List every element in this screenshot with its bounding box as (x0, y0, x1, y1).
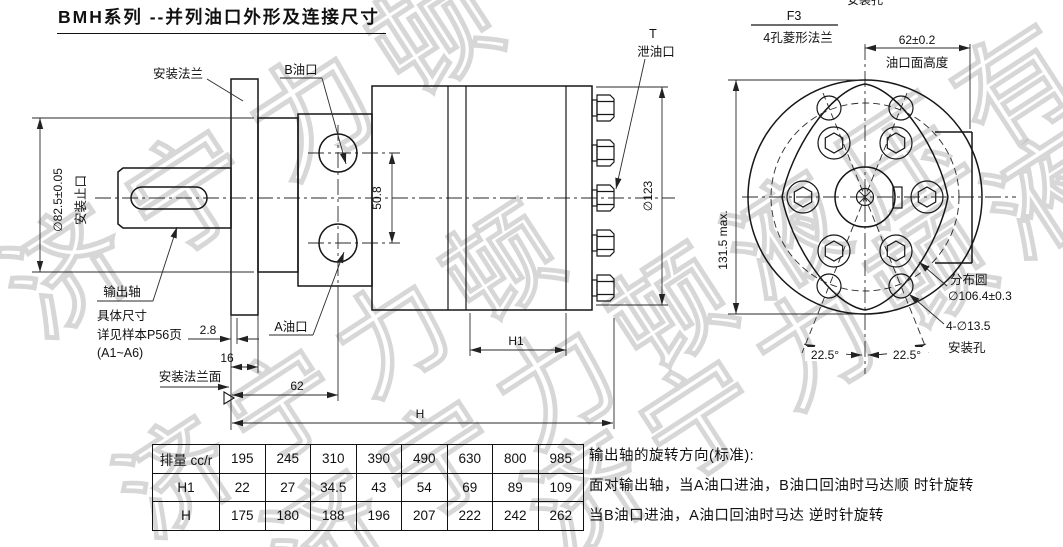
mount-face-label: 安装法兰面 (159, 369, 222, 384)
rotation-note-ccw: 当B油口进油，A油口回油时马达 逆时针旋转 (589, 501, 1063, 531)
flange-code-label: F3 (787, 9, 802, 23)
rotation-notes: 输出轴的旋转方向(标准): 面对输出轴，当A油口进油，B油口回油时马达顺 时针旋… (589, 441, 1063, 531)
table-row: 排量 cc/r 195 245 310 390 490 630 800 985 (153, 445, 584, 474)
table-row: H 175 180 188 196 207 222 242 262 (153, 502, 584, 531)
shaft-note-2: 详见样本P56页 (97, 327, 182, 342)
table-cell: 222 (447, 502, 493, 531)
angle-left-label: 22.5° (811, 348, 839, 362)
bolt-circle-label: 分布圆 (950, 273, 988, 287)
table-cell: 27 (265, 473, 311, 502)
rotation-note-title: 输出轴的旋转方向(标准): (589, 441, 1063, 471)
shaft-note-3: (A1~A6) (97, 346, 143, 360)
top-clipped-label: 安装孔 (847, 0, 883, 7)
table-cell: 195 (220, 445, 266, 474)
table-cell: 54 (402, 473, 448, 502)
flange-name-label: 4孔菱形法兰 (763, 31, 832, 45)
table-cell: 34.5 (311, 473, 357, 502)
row-label: 排量 cc/r (153, 445, 220, 474)
table-cell: 175 (220, 502, 266, 531)
dim-H-label: H (416, 407, 425, 421)
table-cell: 69 (447, 473, 493, 502)
table-cell: 180 (265, 502, 311, 531)
table-cell: 109 (538, 473, 584, 502)
pilot-name-label: 安装止口 (73, 175, 88, 225)
table-cell: 207 (402, 502, 448, 531)
table-cell: 89 (493, 473, 539, 502)
table-cell: 242 (493, 502, 539, 531)
table-cell: 43 (356, 473, 402, 502)
drain-port-leader (616, 59, 645, 189)
table-row: H1 22 27 34.5 43 54 69 89 109 (153, 473, 584, 502)
catalog-page: 济宁力顿 济宁力顿液压有限 济宁力顿液压 济宁力顿 (0, 0, 1063, 547)
pilot-dia-label: ∅82.5±0.05 (51, 168, 65, 232)
mount-holes-label: 安装孔 (948, 340, 986, 355)
port-b-label: B油口 (284, 63, 317, 77)
mount-holes-dim-label: 4-∅13.5 (946, 319, 991, 333)
dim-port-spacing-label: 50.8 (370, 186, 384, 210)
dim-max-height-label: 131.5 max. (716, 210, 730, 269)
dim-port-height-note: 油口面高度 (886, 55, 949, 70)
drain-label: 泄油口 (637, 45, 675, 59)
dim-gap-label: 2.8 (200, 323, 217, 337)
table-cell: 310 (311, 445, 357, 474)
page-title: BMH系列 --并列油口外形及连接尺寸 (57, 4, 386, 34)
dim-port-height-label: 62±0.2 (899, 33, 936, 47)
flange-label: 安装法兰 (153, 66, 203, 81)
port-a-label: A油口 (274, 320, 307, 334)
table-cell: 245 (265, 445, 311, 474)
bolt-circle-dim-label: ∅106.4±0.3 (948, 289, 1012, 303)
row-label: H1 (153, 473, 220, 502)
dim-flange-thk-label: 16 (220, 351, 234, 365)
dim-62-label: 62 (290, 379, 304, 393)
table-cell: 800 (493, 445, 539, 474)
table-cell: 390 (356, 445, 402, 474)
rotation-note-cw: 面对输出轴，当A油口进油，B油口回油时马达顺 时针旋转 (589, 471, 1063, 501)
table-cell: 22 (220, 473, 266, 502)
output-shaft-label: 输出轴 (103, 284, 141, 299)
table-cell: 630 (447, 445, 493, 474)
table-cell: 196 (356, 502, 402, 531)
shaft-note-1: 具体尺寸 (97, 309, 147, 323)
angle-right-label: 22.5° (893, 348, 921, 362)
table-cell: 262 (538, 502, 584, 531)
table-cell: 985 (538, 445, 584, 474)
displacement-table: 排量 cc/r 195 245 310 390 490 630 800 985 … (152, 444, 584, 531)
dim-body-dia-label: ∅123 (641, 180, 655, 211)
drain-t-label: T (649, 27, 657, 41)
dim-H1-label: H1 (508, 334, 524, 348)
table-cell: 188 (311, 502, 357, 531)
row-label: H (153, 502, 220, 531)
table-cell: 490 (402, 445, 448, 474)
